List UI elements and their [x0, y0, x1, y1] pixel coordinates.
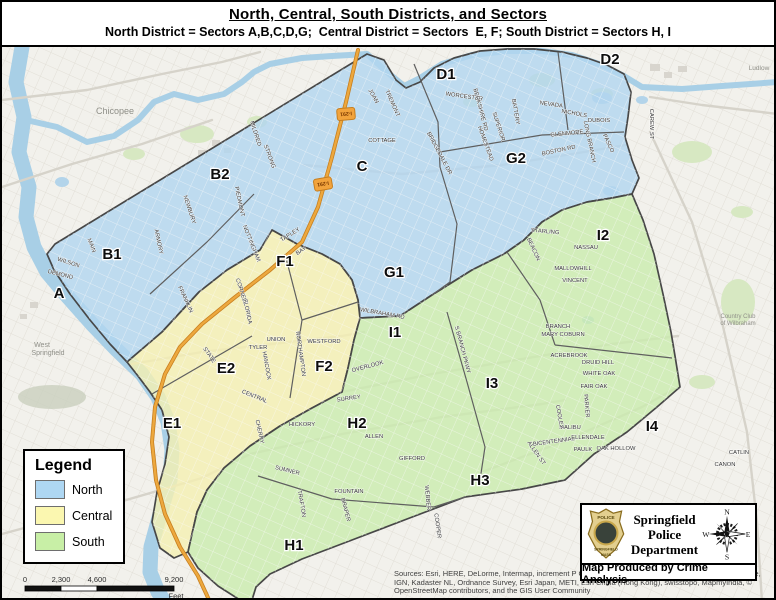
place-label: of Wilbraham: [720, 321, 755, 327]
pond: [636, 96, 648, 104]
sector-label-H3: H3: [470, 472, 489, 489]
compass-east-label: E: [746, 530, 751, 539]
sector-label-D2: D2: [600, 51, 619, 68]
compass-west-label: W: [702, 530, 710, 539]
scale-tick-label: 4,600: [88, 575, 107, 584]
legend-label: North: [72, 483, 103, 497]
sector-label-B1: B1: [102, 246, 121, 263]
scale-bar-segment: [25, 586, 61, 591]
sector-label-G1: G1: [384, 264, 404, 281]
scale-tick-label: 0: [23, 575, 27, 584]
produced-by-label: Map Produced by Crime Analysis: [582, 563, 755, 583]
sector-label-A: A: [54, 285, 65, 302]
compass-south-label: S: [725, 552, 729, 561]
street-label: FAIR OAK: [581, 384, 608, 390]
legend-panel: Legend North Central South: [23, 449, 125, 564]
building-footprint: [650, 64, 660, 71]
place-label: Springfield: [31, 350, 64, 357]
i291-shield-icon: I-291: [337, 107, 356, 121]
scale-bar-segment: [61, 586, 97, 591]
legend-label: South: [72, 535, 105, 549]
sector-label-I3: I3: [486, 375, 499, 392]
building-footprint: [678, 66, 687, 72]
street-label: CANON: [715, 462, 736, 468]
building-footprint: [20, 314, 27, 319]
street-label: MARY COBURN: [541, 332, 584, 338]
sector-label-E2: E2: [217, 360, 235, 377]
department-line: Police: [627, 527, 702, 542]
street-label: ACREBROOK: [550, 353, 587, 359]
police-badge-icon: POLICE SPRINGFIELD MASS: [585, 508, 627, 560]
place-label: Ludlow: [749, 65, 770, 72]
legend-item-south: South: [35, 532, 123, 551]
compass-rose-icon: N E S W: [702, 507, 752, 561]
scale-tick-label: 9,200: [165, 575, 184, 584]
street-label: ELLENDALE: [571, 435, 605, 441]
sector-label-C: C: [357, 158, 368, 175]
building-footprint: [30, 302, 38, 308]
legend-item-north: North: [35, 480, 123, 499]
street-label: CAREW ST: [648, 109, 654, 140]
park-area: [180, 125, 214, 143]
park-area: [672, 141, 712, 163]
place-label: Country Club: [720, 314, 756, 320]
credits-panel: POLICE SPRINGFIELD MASS Springfield Poli…: [580, 503, 757, 581]
place-label: West: [34, 342, 50, 349]
districts-map-document: I-291I-291WORCESTERCAREW STCOTTAGEBOSTON…: [0, 0, 776, 600]
pond: [55, 177, 69, 187]
sector-label-D1: D1: [436, 66, 455, 83]
sector-label-H1: H1: [284, 537, 303, 554]
street-label: FOUNTAIN: [334, 489, 363, 495]
compass-north-label: N: [724, 507, 730, 516]
scale-unit-label: Feet: [168, 592, 184, 600]
street-label: WHITE OAK: [583, 371, 616, 377]
sector-label-B2: B2: [210, 166, 229, 183]
street-label: VINCENT: [562, 278, 588, 284]
department-name: Springfield Police Department: [627, 512, 702, 557]
sector-label-H2: H2: [347, 415, 366, 432]
central-swatch: [35, 506, 65, 525]
badge-bottom-text: MASS: [601, 553, 612, 557]
building-footprint: [664, 72, 672, 78]
park-area: [731, 206, 753, 218]
sector-label-F2: F2: [315, 358, 333, 375]
page-subtitle: North District = Sectors A,B,C,D,G; Cent…: [2, 25, 774, 39]
north-swatch: [35, 480, 65, 499]
sector-label-F1: F1: [276, 253, 294, 270]
park-area: [123, 148, 145, 160]
street-label: PAULK: [574, 447, 593, 453]
street-label: DRUID HILL: [582, 360, 615, 366]
hill-shading: [18, 385, 86, 409]
scale-tick-label: 2,300: [52, 575, 71, 584]
street-label: CATLIN: [729, 450, 749, 456]
i291-shield-label: I-291: [340, 110, 352, 117]
scale-bar-segment: [97, 586, 174, 591]
street-label: BRANCH: [546, 324, 570, 330]
legend-title: Legend: [35, 457, 123, 475]
sector-label-I4: I4: [646, 418, 659, 435]
street-label: OAK HOLLOW: [597, 446, 637, 452]
sector-label-I1: I1: [389, 324, 402, 341]
street-label: MALLOWHILL: [554, 266, 592, 272]
department-line: Department: [627, 542, 702, 557]
sector-label-E1: E1: [163, 415, 181, 432]
park-area: [689, 375, 715, 389]
street-label: NASSAU: [574, 245, 598, 251]
sector-label-G2: G2: [506, 150, 526, 167]
street-label: COTTAGE: [368, 138, 396, 144]
street-label: UNION: [267, 337, 286, 343]
sector-label-I2: I2: [597, 227, 610, 244]
i291-shield-icon: I-291: [313, 177, 333, 192]
south-swatch: [35, 532, 65, 551]
legend-item-central: Central: [35, 506, 123, 525]
street-label: WESTFORD: [307, 339, 340, 345]
street-label: HICKORY: [289, 422, 315, 428]
badge-top-text: POLICE: [597, 515, 614, 520]
place-label: Chicopee: [96, 106, 134, 116]
badge-middle-text: SPRINGFIELD: [594, 548, 618, 552]
credits-main: POLICE SPRINGFIELD MASS Springfield Poli…: [582, 505, 755, 563]
street-label: ALLEN: [365, 434, 383, 440]
page-title: North, Central, South Districts, and Sec…: [2, 6, 774, 23]
department-line: Springfield: [627, 512, 702, 527]
street-label: GIFFORD: [399, 456, 425, 462]
title-bar: North, Central, South Districts, and Sec…: [2, 2, 774, 47]
street-label: DUBOIS: [588, 118, 610, 124]
street-label: TYLER: [249, 345, 268, 351]
legend-label: Central: [72, 509, 112, 523]
